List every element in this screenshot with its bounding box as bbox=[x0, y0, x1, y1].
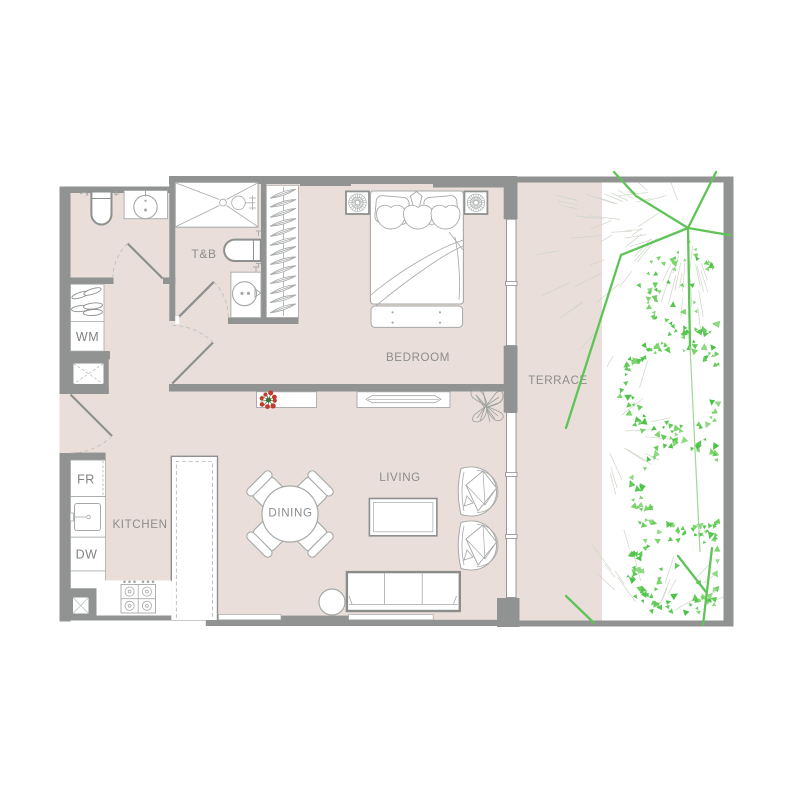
svg-text:BEDROOM: BEDROOM bbox=[386, 351, 450, 364]
svg-text:DINING: DINING bbox=[268, 507, 312, 520]
svg-text:LIVING: LIVING bbox=[379, 471, 421, 484]
svg-text:DW: DW bbox=[76, 548, 98, 562]
svg-text:KITCHEN: KITCHEN bbox=[112, 518, 167, 531]
svg-text:WM: WM bbox=[76, 330, 99, 344]
svg-text:T&B: T&B bbox=[191, 247, 216, 261]
svg-text:FR: FR bbox=[77, 473, 95, 487]
